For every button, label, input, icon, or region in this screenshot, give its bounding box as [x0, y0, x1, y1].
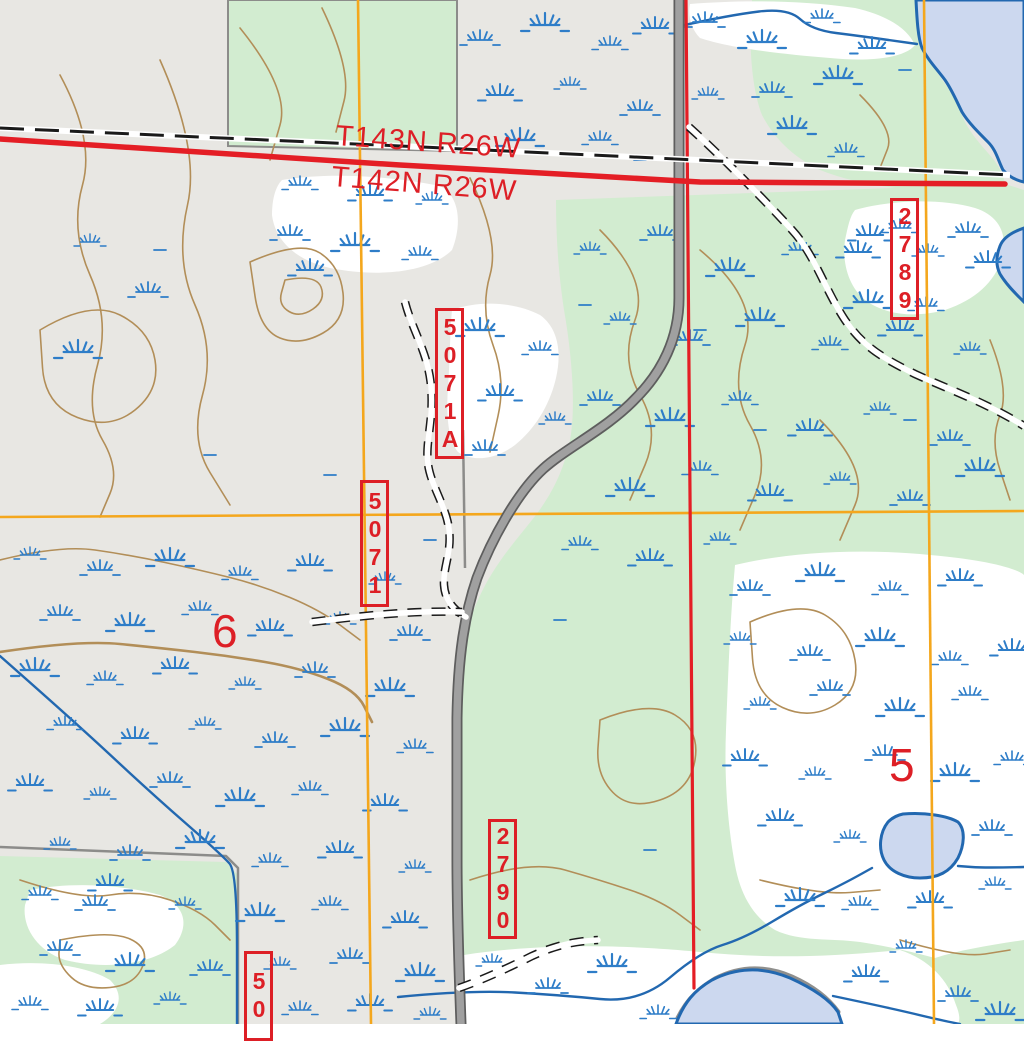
- pond: [881, 813, 964, 878]
- road-number-label-2790: 2790: [488, 819, 517, 939]
- section-number-5: 5: [889, 738, 915, 792]
- road-number-label-2789: 2789: [890, 198, 919, 320]
- road-number-label-50-partial: 50: [244, 951, 273, 1041]
- section-number-6: 6: [212, 604, 238, 658]
- topo-map-screenshot: { "township_labels": [ { "text": "T143N …: [0, 0, 1024, 1024]
- road-number-label-5071: 5071: [360, 480, 389, 607]
- road-number-label-5071a: 5071A: [435, 308, 464, 459]
